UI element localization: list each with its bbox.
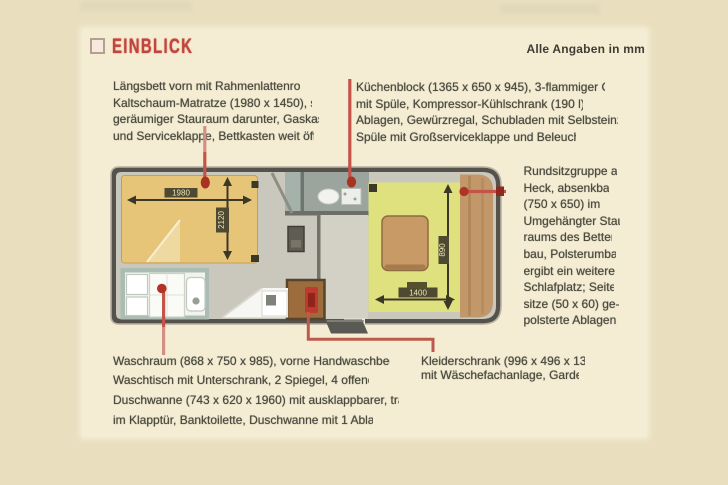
svg-text:1400: 1400 xyxy=(409,289,427,298)
svg-text:2120: 2120 xyxy=(217,211,226,229)
svg-text:890: 890 xyxy=(438,243,447,257)
svg-text:1980: 1980 xyxy=(172,189,190,198)
